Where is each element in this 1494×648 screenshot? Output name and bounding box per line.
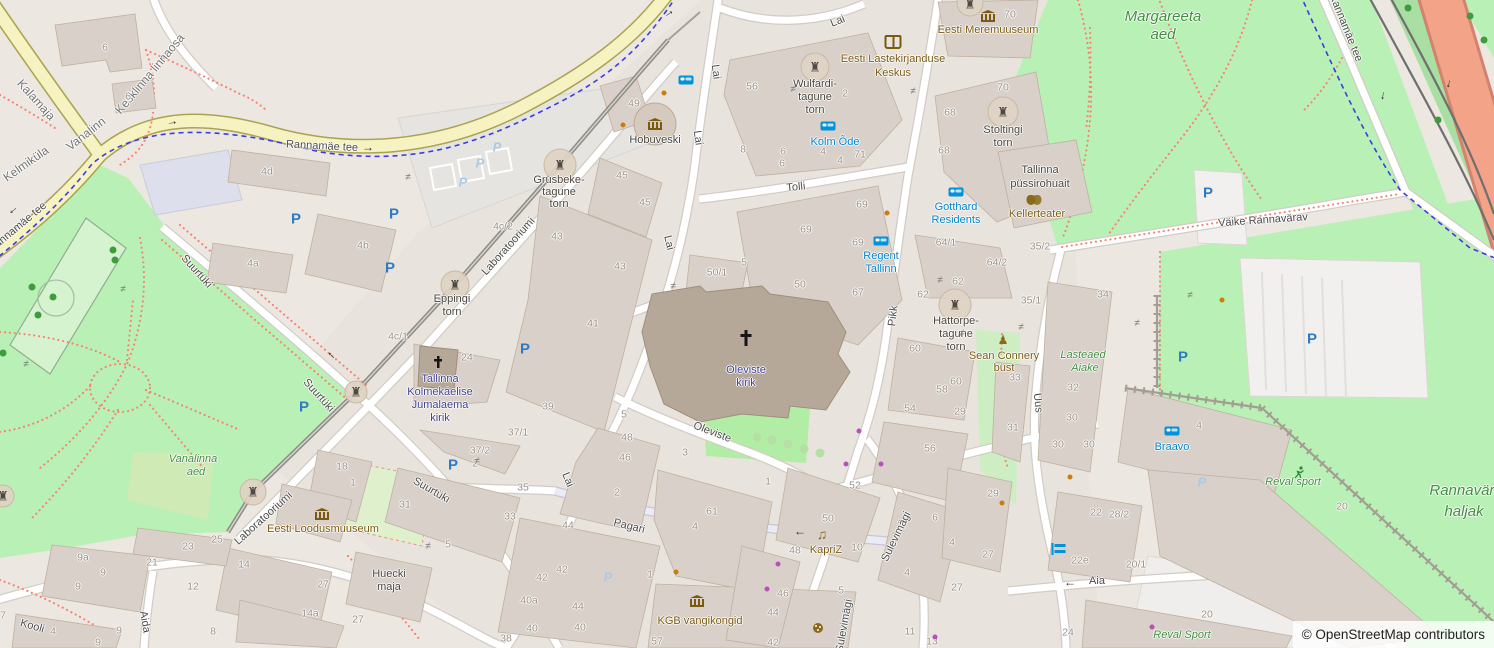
parking-aisle-icon: P	[476, 156, 485, 171]
hotel-label: Gotthard	[935, 202, 978, 214]
dark-label: Grusbeke-	[533, 175, 584, 187]
housenumber-label: 3	[682, 447, 688, 458]
attribution-link[interactable]: © OpenStreetMap contributors	[1302, 627, 1485, 642]
tower-icon: ♜	[964, 0, 976, 11]
housenumber-label: 50	[822, 513, 834, 524]
tower-icon: ♜	[449, 279, 461, 292]
poi-dot	[933, 635, 938, 640]
oneway-arrow-icon: →	[362, 141, 374, 153]
housenumber-label: 4	[1196, 420, 1202, 431]
tree-icon	[1467, 13, 1474, 20]
housenumber-label: 54	[904, 403, 916, 414]
gate-icon: ≠	[670, 282, 676, 292]
housenumber-label: 21	[146, 557, 158, 568]
housenumber-label: 4	[949, 537, 955, 548]
hotel-label: Kolm Õde	[811, 137, 860, 149]
housenumber-label: 1	[765, 476, 771, 487]
housenumber-label: 22	[1090, 507, 1102, 518]
tree-icon	[35, 312, 42, 319]
green-label: Lasteaed	[1060, 350, 1105, 362]
street-label: Sulevimägi	[835, 599, 856, 648]
housenumber-label: 52	[849, 480, 861, 491]
tree-icon	[112, 257, 119, 264]
street-label: Uus	[1030, 393, 1044, 414]
housenumber-label: 56	[924, 443, 936, 454]
tower-icon: ♜	[949, 299, 961, 312]
artwork-icon	[813, 623, 823, 633]
church-label: Kolmekäelise	[407, 387, 472, 399]
parking-icon: P	[389, 206, 399, 223]
street-label: Lai	[708, 64, 721, 80]
church-label: kirik	[430, 413, 450, 425]
street-label: Laboratooriumi	[233, 490, 295, 548]
housenumber-label: 5	[621, 409, 627, 420]
housenumber-label: 30	[1066, 412, 1078, 423]
housenumber-label: 35/1	[1021, 295, 1041, 306]
housenumber-label: 27	[352, 614, 364, 625]
housenumber-label: 45	[616, 170, 628, 181]
museum-icon	[648, 118, 662, 130]
parking-aisle-icon: P	[493, 140, 502, 155]
housenumber-label: 9	[116, 625, 122, 636]
tower-icon: ♜	[350, 386, 362, 399]
street-label: Lai	[690, 130, 703, 146]
dark-label: Tallinna	[1021, 165, 1058, 177]
green-label: Reval Sport	[1153, 630, 1210, 642]
gate-icon: ≠	[425, 542, 431, 552]
housenumber-label: 42	[767, 637, 779, 648]
housenumber-label: 6	[102, 42, 108, 53]
church-label: Oleviste	[726, 365, 766, 377]
gate-icon: ≠	[937, 276, 943, 286]
oneway-arrow-icon: ←	[794, 525, 806, 537]
housenumber-label: 9	[100, 567, 106, 578]
housenumber-label: 25	[211, 534, 223, 545]
poi-label: Eesti Meremuuseum	[938, 25, 1039, 37]
parking-aisle-icon: P	[604, 570, 613, 585]
housenumber-label: 40a	[520, 595, 538, 606]
housenumber-label: 23	[182, 541, 194, 552]
housenumber-label: 9a	[77, 552, 89, 563]
housenumber-label: 30	[1083, 439, 1095, 450]
oneway-arrow-icon: ↓	[1445, 76, 1454, 89]
housenumber-label: 70	[997, 82, 1009, 93]
housenumber-label: 4	[904, 567, 910, 578]
street-label: Sulevimägi	[880, 510, 914, 563]
housenumber-label: 27	[951, 582, 963, 593]
housenumber-label: 4	[50, 626, 56, 637]
housenumber-label: 33	[1009, 372, 1021, 383]
dark-label: torn	[550, 199, 569, 211]
street-tree-icon	[753, 433, 762, 442]
poi-dot	[844, 462, 849, 467]
street-label: Lai	[559, 471, 575, 489]
gate-icon: ≠	[910, 87, 916, 97]
housenumber-label: 41	[587, 318, 599, 329]
housenumber-label: 5	[445, 539, 451, 550]
poi-dot	[1220, 298, 1225, 303]
place-label: Kesklinna linnaosa	[113, 32, 187, 117]
housenumber-label: 4c/2	[493, 221, 513, 232]
housenumber-label: 35	[517, 482, 529, 493]
poi-dot	[765, 587, 770, 592]
gate-icon: ≠	[1134, 319, 1140, 329]
hotel-label: Regent	[863, 251, 898, 263]
housenumber-label: 49	[628, 98, 640, 109]
housenumber-label: 22e	[1071, 555, 1089, 566]
street-tree-icon	[768, 436, 777, 445]
dark-label: tagune	[939, 329, 973, 341]
street-label: Lai	[661, 234, 676, 251]
housenumber-label: 8	[740, 144, 746, 155]
parking-icon: P	[1203, 185, 1213, 202]
housenumber-label: 6	[125, 91, 131, 102]
tower-icon: ♜	[554, 159, 566, 172]
poi-label: Sean Connery	[969, 351, 1039, 363]
street-label: Rannamäe tee	[1326, 0, 1364, 64]
street-label: Suurtüki	[178, 253, 214, 291]
housenumber-label: 4d	[261, 166, 273, 177]
poi-label: Keskus	[875, 68, 911, 80]
gate-icon: ≠	[120, 285, 126, 295]
housenumber-label: 2	[614, 487, 620, 498]
poi-dot	[1068, 475, 1073, 480]
housenumber-label: 56	[746, 81, 758, 92]
housenumber-label: 46	[777, 588, 789, 599]
dark-label: maja	[377, 582, 401, 594]
attribution-bar: © OpenStreetMap contributors	[1293, 621, 1494, 648]
housenumber-label: 43	[551, 231, 563, 242]
tree-icon	[110, 247, 117, 254]
hotel-label: Tallinn	[865, 264, 896, 276]
dark-label: tagune	[798, 92, 832, 104]
street-tree-icon	[784, 440, 793, 449]
housenumber-label: 50/1	[707, 267, 727, 278]
theatre-icon	[1027, 195, 1042, 205]
hotel-icon	[1165, 427, 1180, 436]
poi-dot	[1150, 625, 1155, 630]
poi-dot	[1000, 501, 1005, 506]
tower-icon: ♜	[247, 486, 259, 499]
housenumber-label: 10	[851, 542, 863, 553]
housenumber-label: 5	[838, 585, 844, 596]
parking-aisle-icon: P	[1198, 475, 1207, 490]
housenumber-label: 50	[794, 279, 806, 290]
hostel-icon	[1052, 543, 1067, 555]
street-label: Tolli	[786, 181, 806, 194]
housenumber-label: 40	[526, 623, 538, 634]
oneway-arrow-icon: →	[322, 349, 339, 366]
tree-icon	[29, 284, 36, 291]
parking-icon: P	[1307, 331, 1317, 348]
housenumber-label: 42	[536, 572, 548, 583]
housenumber-label: 7	[0, 610, 6, 621]
dark-label: torn	[947, 342, 966, 354]
housenumber-label: 35/2	[1030, 241, 1050, 252]
housenumber-label: 20/1	[1126, 559, 1146, 570]
housenumber-label: 69	[856, 199, 868, 210]
street-label: Aida	[136, 610, 151, 634]
green-label: aed	[187, 467, 205, 479]
parking-icon: P	[448, 457, 458, 474]
housenumber-label: 62	[917, 289, 929, 300]
museum-icon	[315, 508, 329, 520]
housenumber-label: 34	[1097, 289, 1109, 300]
street-label: Pagari	[612, 518, 646, 537]
housenumber-label: 20	[1336, 501, 1348, 512]
dark-label: tagune	[542, 187, 576, 199]
gate-icon: ≠	[405, 173, 411, 183]
tree-icon	[1481, 37, 1488, 44]
housenumber-label: 70	[1004, 9, 1016, 20]
oneway-arrow-icon: ←	[4, 201, 21, 218]
housenumber-label: 18	[336, 461, 348, 472]
hotel-icon	[949, 188, 964, 197]
street-label: Aia	[1089, 576, 1105, 588]
gate-icon: ≠	[23, 360, 29, 370]
housenumber-label: 40	[574, 622, 586, 633]
parking-aisle-icon: P	[459, 175, 468, 190]
housenumber-label: 43	[614, 261, 626, 272]
museum-icon	[690, 595, 704, 607]
gate-icon: ≠	[959, 329, 965, 339]
tree-icon	[0, 350, 7, 357]
housenumber-label: 27	[982, 549, 994, 560]
dark-label: Stoltingi	[983, 125, 1022, 137]
street-label: Oleviste	[691, 420, 732, 445]
housenumber-label: 60	[950, 376, 962, 387]
tree-icon	[50, 294, 57, 301]
green-label: Aiake	[1071, 363, 1099, 375]
street-label: Pikk	[887, 305, 901, 327]
dark-label: Eppingi	[434, 294, 471, 306]
church-label: Jumalaema	[412, 400, 469, 412]
housenumber-label: 57	[651, 636, 663, 647]
poi-dot	[776, 562, 781, 567]
poi-dot	[885, 211, 890, 216]
housenumber-label: 14	[238, 559, 250, 570]
green-label: Margareeta	[1125, 9, 1202, 25]
green-label: haljak	[1444, 504, 1483, 520]
map-canvas[interactable]: Rannamäe teeRannamäe teeRannamäe teeLaiL…	[0, 0, 1494, 648]
place-label: Kalamaja	[15, 77, 58, 123]
street-label: Rannamäe tee	[286, 139, 359, 154]
housenumber-label: 44	[562, 520, 574, 531]
housenumber-label: 68	[938, 145, 950, 156]
housenumber-label: 38	[500, 633, 512, 644]
dark-label: Hobuveski	[629, 135, 680, 147]
parking-icon: P	[520, 341, 530, 358]
oneway-arrow-icon: →	[660, 4, 677, 21]
dark-label: Huecki	[372, 569, 406, 581]
library-icon	[885, 35, 902, 49]
housenumber-label: 60	[909, 343, 921, 354]
housenumber-label: 64/2	[987, 257, 1007, 268]
gate-icon: ≠	[790, 85, 796, 95]
poi-dot	[621, 123, 626, 128]
housenumber-label: 61	[706, 506, 718, 517]
housenumber-label: 24	[1062, 627, 1074, 638]
housenumber-label: 31	[399, 499, 411, 510]
housenumber-label: 4	[692, 521, 698, 532]
poi-dot	[857, 429, 862, 434]
green-label: Vanalinna	[169, 454, 218, 466]
dark-label: torn	[443, 307, 462, 319]
housenumber-label: 44	[767, 607, 779, 618]
oneway-arrow-icon: →	[165, 114, 179, 128]
poi-label: Kellerteater	[1009, 209, 1065, 221]
street-label: Lai	[829, 14, 847, 30]
housenumber-label: 42	[556, 564, 568, 575]
housenumber-label: 4	[820, 146, 826, 157]
housenumber-label: 48	[621, 432, 633, 443]
housenumber-label: 4c/1	[388, 331, 408, 342]
dark-label: torn	[806, 105, 825, 117]
tree-icon	[1435, 117, 1442, 124]
housenumber-label: 24	[461, 352, 473, 363]
housenumber-label: 32	[1067, 382, 1079, 393]
gate-icon: ≠	[1018, 323, 1024, 333]
hotel-icon	[821, 122, 836, 131]
church-label: kirik	[736, 378, 756, 390]
housenumber-label: 29	[954, 406, 966, 417]
music-icon: ♫	[817, 527, 828, 541]
housenumber-label: 6	[932, 512, 938, 523]
housenumber-label: 44	[572, 601, 584, 612]
street-tree-icon	[816, 449, 825, 458]
place-label: Kelmiküla	[1, 144, 51, 184]
housenumber-label: 8	[210, 626, 216, 637]
church-label: Tallinna	[421, 374, 458, 386]
street-label: Suurtüki	[411, 476, 452, 506]
housenumber-label: 68	[944, 107, 956, 118]
housenumber-label: 30	[1052, 439, 1064, 450]
housenumber-label: 45	[639, 197, 651, 208]
museum-icon	[981, 10, 995, 22]
parking-icon: P	[291, 211, 301, 228]
parking-icon: P	[1178, 349, 1188, 366]
church-cross-icon	[434, 356, 442, 368]
dark-label: torn	[994, 138, 1013, 150]
street-label: Kooli	[19, 618, 46, 636]
housenumber-label: 1	[350, 477, 356, 488]
hotel-label: Residents	[932, 215, 981, 227]
housenumber-label: 1	[647, 569, 653, 580]
housenumber-label: 64/1	[936, 237, 956, 248]
hotel-label: Braavo	[1155, 442, 1190, 454]
dark-label: Wulfardi-	[793, 79, 837, 91]
housenumber-label: 69	[800, 224, 812, 235]
housenumber-label: 2	[842, 88, 848, 99]
poi-label: KapriZ	[810, 545, 842, 557]
street-tree-icon	[800, 445, 809, 454]
dark-label: püssirohuait	[1010, 179, 1069, 191]
poi-dot	[662, 91, 667, 96]
tower-icon: ♜	[997, 106, 1009, 119]
parking-icon: P	[385, 260, 395, 277]
oneway-arrow-icon: ↓	[1379, 89, 1387, 102]
housenumber-label: 4b	[357, 240, 369, 251]
gate-icon: ≠	[1187, 291, 1193, 301]
green-label: Rannavärava	[1429, 483, 1494, 499]
housenumber-label: 9	[75, 581, 81, 592]
poi-dot	[879, 462, 884, 467]
poi-dot	[674, 570, 679, 575]
tower-icon: ♜	[809, 61, 821, 74]
housenumber-label: 39	[542, 401, 554, 412]
housenumber-label: 29	[987, 488, 999, 499]
housenumber-label: 14a	[301, 608, 319, 619]
housenumber-label: 11	[905, 626, 916, 637]
poi-label: Eesti Loodusmuuseum	[267, 524, 379, 536]
housenumber-label: 71	[854, 149, 866, 160]
street-label: Väike Rannavärav	[1218, 212, 1308, 230]
hotel-icon	[679, 76, 694, 85]
dark-label: Hattorpe-	[933, 316, 979, 328]
housenumber-label: 5	[741, 257, 747, 268]
housenumber-label: 9	[95, 637, 101, 648]
housenumber-label: 67	[852, 287, 864, 298]
poi-label: KGB vangikongid	[658, 616, 743, 628]
housenumber-label: 31	[1007, 422, 1019, 433]
gate-icon: ≠	[474, 457, 480, 467]
housenumber-label: 33	[504, 511, 516, 522]
housenumber-label: 69	[852, 237, 864, 248]
place-label: Vanalinn	[64, 115, 108, 153]
map-overlay: Rannamäe teeRannamäe teeRannamäe teeLaiL…	[0, 0, 1494, 648]
statue-icon: ♟	[998, 334, 1009, 346]
housenumber-label: 48	[789, 545, 801, 556]
church-cross-icon	[741, 330, 752, 346]
housenumber-label: 28/2	[1109, 509, 1129, 520]
hotel-icon	[874, 237, 889, 246]
housenumber-label: 4	[837, 155, 843, 166]
tree-icon	[1405, 5, 1412, 12]
oneway-arrow-icon: ←	[1064, 576, 1076, 588]
housenumber-label: 58	[936, 384, 948, 395]
housenumber-label: 4a	[247, 258, 259, 269]
housenumber-label: 46	[619, 452, 631, 463]
housenumber-label: 27	[317, 579, 329, 590]
housenumber-label: 20	[1201, 609, 1213, 620]
housenumber-label: 12	[187, 581, 199, 592]
green-label: aed	[1150, 27, 1175, 43]
tower-icon: ♜	[0, 490, 9, 503]
housenumber-label: 37/2	[470, 445, 490, 456]
housenumber-label: 6	[779, 158, 785, 169]
housenumber-label: 6	[780, 146, 786, 157]
housenumber-label: 62	[952, 276, 964, 287]
poi-label: Eesti Lastekirjanduse	[841, 54, 946, 66]
parking-icon: P	[299, 399, 309, 416]
housenumber-label: 37/1	[508, 427, 528, 438]
